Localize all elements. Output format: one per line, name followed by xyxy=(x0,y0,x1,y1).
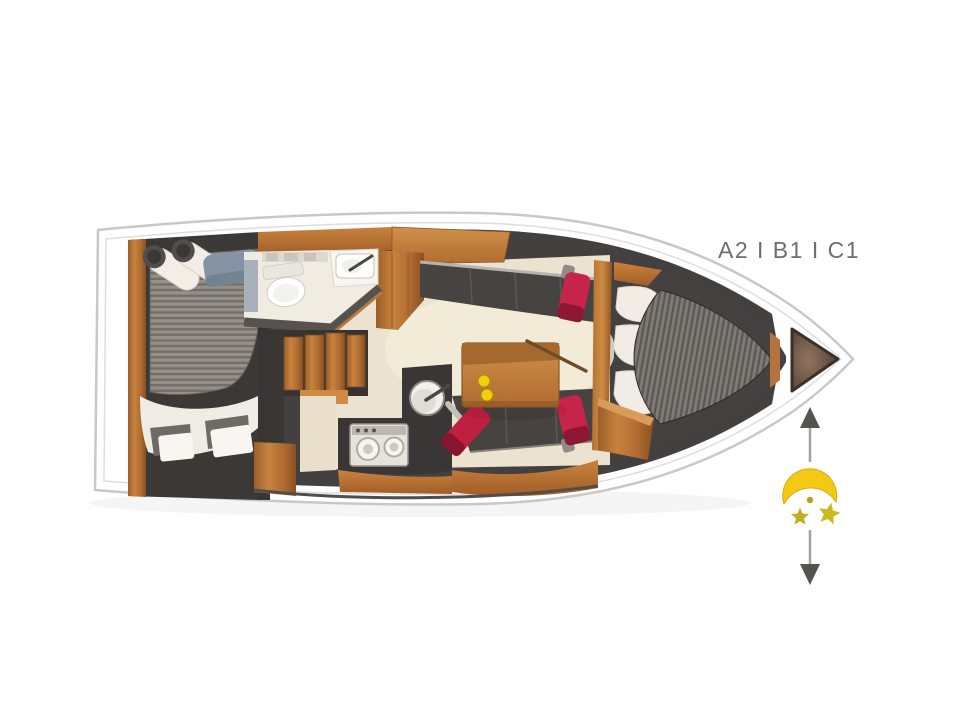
passage-floor xyxy=(300,396,336,472)
shower-column xyxy=(244,260,258,312)
sink-icon xyxy=(330,249,378,287)
star-icon xyxy=(816,500,842,525)
night-capacity-marker xyxy=(783,407,842,585)
floorplan-graphic xyxy=(0,0,960,720)
stove-icon xyxy=(350,424,408,466)
yacht-floorplan: A2 I B1 I C1 xyxy=(0,0,960,720)
aft-cabin-wood-trim xyxy=(128,239,146,497)
up-arrow-icon xyxy=(800,407,820,428)
star-icon xyxy=(791,508,809,525)
layout-code-label: A2 I B1 I C1 xyxy=(718,237,898,264)
star-dot-icon xyxy=(807,497,813,503)
forward-wood-trim xyxy=(770,332,780,388)
down-arrow-icon xyxy=(800,564,820,585)
